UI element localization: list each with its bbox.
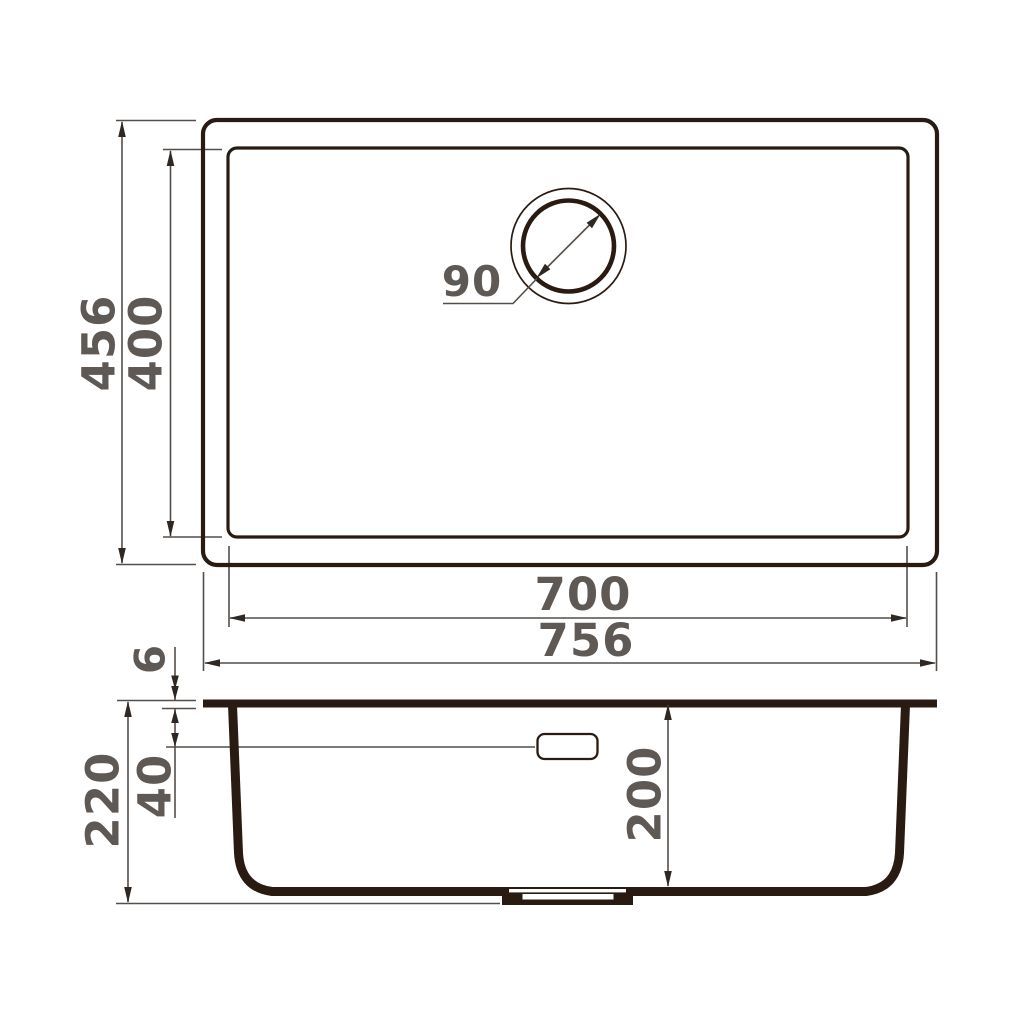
- dim-bowl-depth: 200: [619, 704, 672, 887]
- dim-label-outer-depth: 456: [73, 295, 126, 392]
- side-view: 6 40 220 200: [77, 644, 938, 905]
- overflow-opening: [538, 734, 598, 759]
- dim-label-overflow-offset: 40: [129, 754, 182, 819]
- top-view-extension-lines: [116, 121, 937, 672]
- sink-outer-outline: [203, 120, 937, 565]
- dim-label-outer-width: 756: [538, 614, 635, 667]
- dim-label-rim-thickness: 6: [126, 644, 175, 674]
- dim-label-inner-depth: 400: [120, 295, 173, 392]
- dim-rim-thickness: 6: [126, 644, 179, 700]
- dim-label-total-height: 220: [77, 752, 130, 849]
- dim-label-drain-diameter: 90: [442, 257, 502, 306]
- bowl-inner-outline: [228, 148, 908, 537]
- drawing-svg: 456 400 90 700: [0, 0, 1024, 1024]
- dim-outer-depth: 456: [73, 121, 126, 564]
- dim-overflow-offset: 40: [129, 709, 182, 818]
- rim-flange: [203, 700, 937, 708]
- dim-total-height: 220: [77, 701, 132, 903]
- top-view: 456 400 90 700: [73, 120, 938, 671]
- dim-inner-depth: 400: [120, 150, 175, 537]
- sink-technical-drawing: 456 400 90 700: [0, 0, 1024, 1024]
- dim-outer-width: 756: [204, 614, 936, 667]
- dim-label-bowl-depth: 200: [619, 746, 672, 843]
- drain-recess: [502, 889, 633, 905]
